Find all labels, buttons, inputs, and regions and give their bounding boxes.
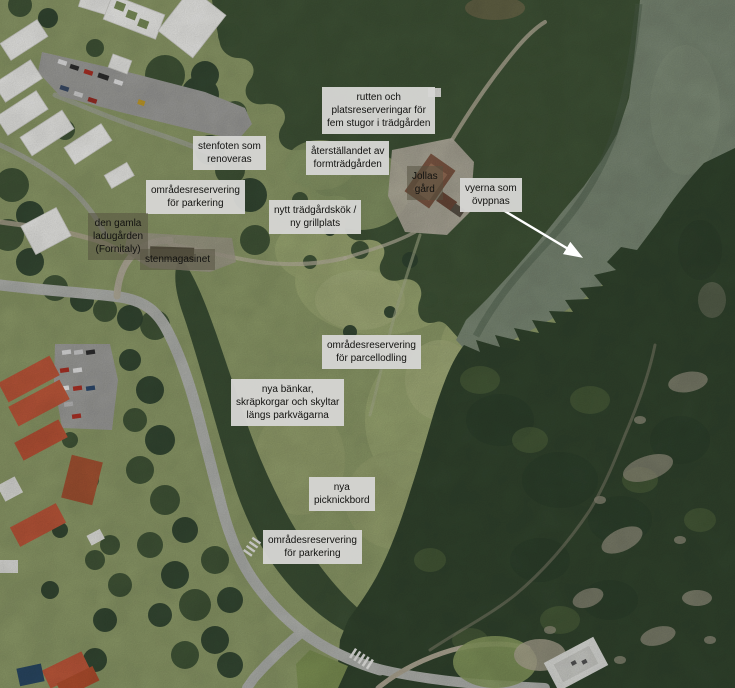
aerial-map-view: rutten och platsreserveringar för fem st…: [0, 0, 735, 688]
map-label-views-opening: vyerna som övppnas: [460, 178, 522, 212]
map-label-garden-kitchen: nytt trädgårdskök / ny grillplats: [269, 200, 361, 234]
map-label-picnic-tables: nya picknickbord: [309, 477, 375, 511]
map-label-allotment-reservation: områdesreservering för parcellodling: [322, 335, 421, 369]
map-label-jollas-gard: Jollas gård: [407, 166, 443, 200]
map-label-cottages-route: rutten och platsreserveringar för fem st…: [322, 87, 435, 134]
map-label-parking-reservation-north: områdesreservering för parkering: [146, 180, 245, 214]
map-label-stone-foundation: stenfoten som renoveras: [193, 136, 266, 170]
map-label-benches-and-signs: nya bänkar, skräpkorgar och skyltar läng…: [231, 379, 344, 426]
map-label-parking-reservation-south: områdesreservering för parkering: [263, 530, 362, 564]
map-label-formal-garden: återställandet av formträdgården: [306, 141, 389, 175]
map-label-stone-magazine: stenmagasinet: [140, 249, 215, 270]
